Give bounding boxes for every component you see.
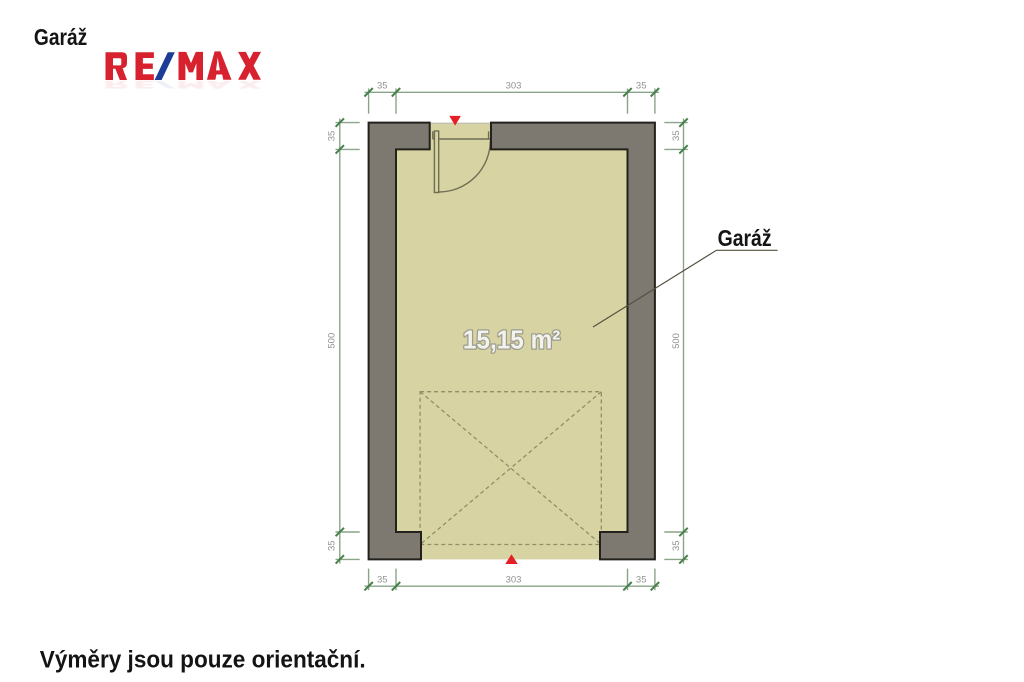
- svg-text:35: 35: [671, 130, 682, 141]
- svg-text:35: 35: [636, 81, 647, 92]
- svg-text:Garáž: Garáž: [718, 226, 772, 252]
- svg-text:35: 35: [377, 575, 388, 586]
- svg-text:35: 35: [671, 540, 682, 551]
- svg-text:35: 35: [327, 540, 338, 551]
- svg-text:35: 35: [327, 131, 338, 142]
- svg-text:35: 35: [377, 81, 388, 92]
- svg-text:15,15 m²: 15,15 m²: [463, 326, 560, 355]
- svg-text:Garáž: Garáž: [34, 24, 87, 50]
- svg-text:500: 500: [327, 333, 338, 349]
- svg-text:Výměry jsou pouze orientační.: Výměry jsou pouze orientační.: [40, 646, 366, 673]
- svg-text:303: 303: [506, 81, 522, 92]
- svg-text:303: 303: [506, 575, 522, 586]
- svg-text:500: 500: [671, 333, 682, 349]
- svg-text:35: 35: [636, 575, 647, 586]
